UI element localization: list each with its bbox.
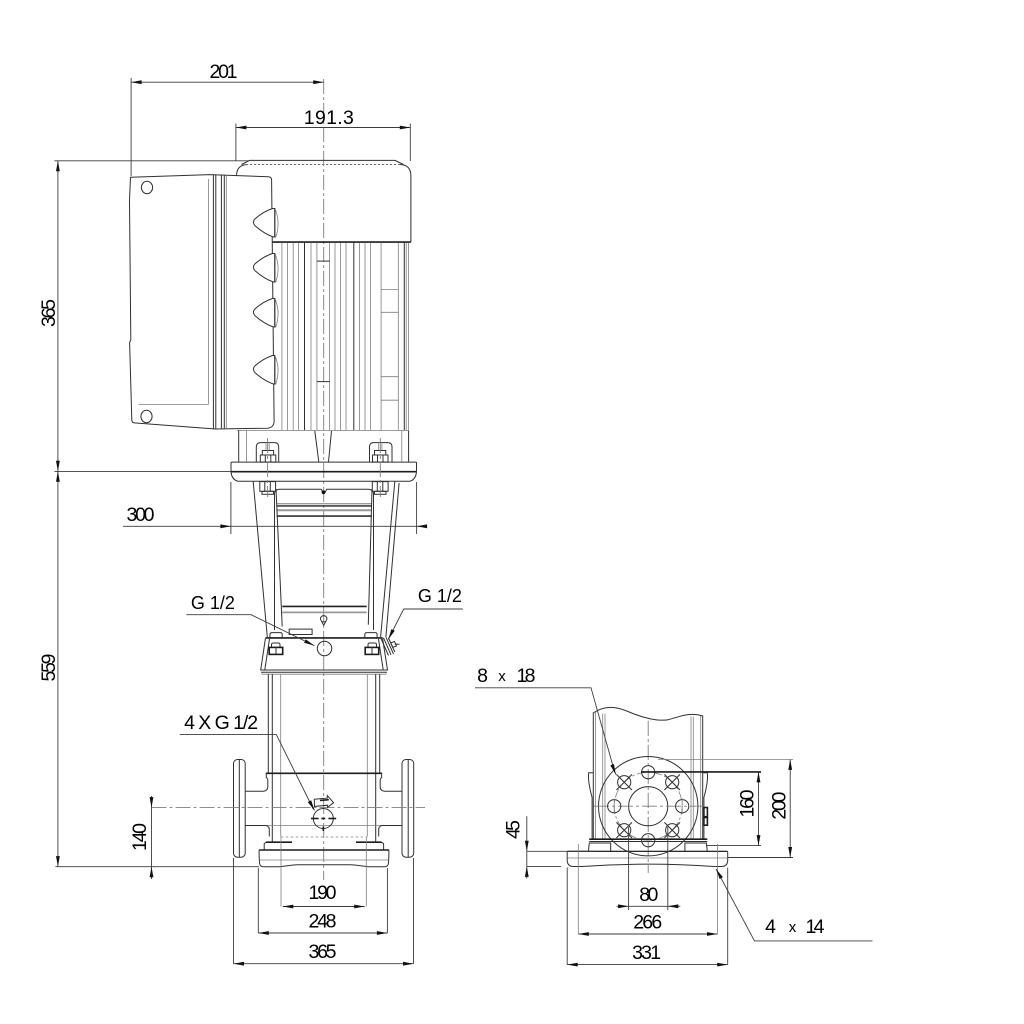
svg-text:160: 160 bbox=[737, 789, 759, 817]
svg-text:331: 331 bbox=[632, 942, 661, 964]
svg-text:G 1/2: G 1/2 bbox=[418, 586, 462, 606]
svg-text:14: 14 bbox=[806, 916, 825, 938]
svg-text:559: 559 bbox=[38, 654, 60, 682]
svg-text:191.3: 191.3 bbox=[304, 107, 354, 129]
svg-text:18: 18 bbox=[517, 665, 536, 687]
svg-text:365: 365 bbox=[38, 299, 60, 327]
svg-text:248: 248 bbox=[309, 911, 337, 933]
svg-text:x: x bbox=[498, 668, 506, 685]
svg-text:190: 190 bbox=[309, 882, 337, 904]
svg-text:200: 200 bbox=[769, 791, 791, 819]
svg-text:G 1/2: G 1/2 bbox=[191, 593, 235, 613]
svg-text:x: x bbox=[789, 919, 797, 936]
svg-text:300: 300 bbox=[127, 504, 155, 526]
svg-text:201: 201 bbox=[210, 61, 238, 83]
svg-text:266: 266 bbox=[633, 912, 662, 934]
svg-text:45: 45 bbox=[503, 820, 525, 839]
svg-text:80: 80 bbox=[639, 884, 658, 906]
svg-text:140: 140 bbox=[129, 823, 151, 851]
svg-text:4: 4 bbox=[765, 916, 776, 938]
svg-text:365: 365 bbox=[309, 941, 337, 963]
svg-text:8: 8 bbox=[477, 665, 488, 687]
svg-text:4 X G 1/2: 4 X G 1/2 bbox=[184, 712, 258, 734]
